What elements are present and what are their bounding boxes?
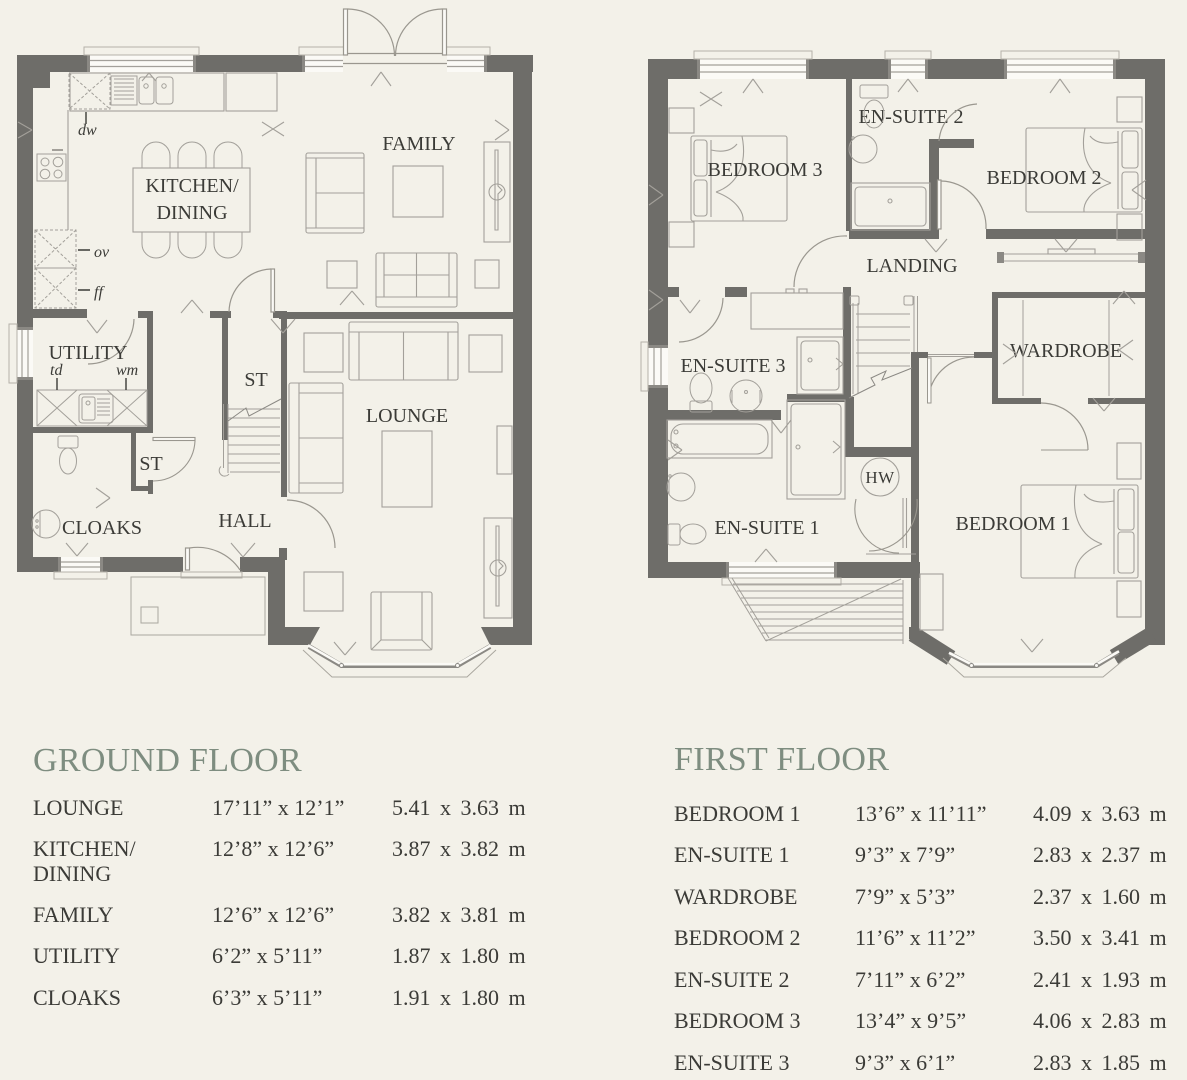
svg-text:13’6” x 11’11”: 13’6” x 11’11” [855,801,987,826]
svg-text:EN-SUITE 1: EN-SUITE 1 [715,517,820,539]
svg-text:WARDROBE: WARDROBE [1010,340,1122,362]
svg-text:7’9” x 5’3”: 7’9” x 5’3” [855,884,955,909]
svg-text:12’8” x 12’6”: 12’8” x 12’6” [212,836,334,861]
svg-text:CLOAKS: CLOAKS [62,517,142,539]
svg-text:EN-SUITE 2: EN-SUITE 2 [859,106,964,128]
svg-text:KITCHEN/: KITCHEN/ [33,836,137,861]
svg-text:BEDROOM 2: BEDROOM 2 [986,167,1101,189]
svg-text:4.09 x 3.63 m: 4.09 x 3.63 m [1033,801,1167,826]
svg-text:DINING: DINING [156,202,227,224]
svg-text:td: td [50,362,63,379]
svg-text:FIRST FLOOR: FIRST FLOOR [674,741,889,778]
svg-text:GROUND FLOOR: GROUND FLOOR [33,742,302,779]
svg-text:6’3” x 5’11”: 6’3” x 5’11” [212,985,322,1010]
svg-text:BEDROOM 1: BEDROOM 1 [955,513,1070,535]
svg-text:11’6” x 11’2”: 11’6” x 11’2” [855,925,976,950]
svg-text:BEDROOM 3: BEDROOM 3 [674,1008,801,1033]
svg-text:9’3” x 7’9”: 9’3” x 7’9” [855,842,955,867]
svg-text:ov: ov [94,244,110,261]
svg-text:ff: ff [94,284,105,301]
svg-text:3.82 x 3.81 m: 3.82 x 3.81 m [392,902,526,927]
svg-text:LOUNGE: LOUNGE [33,795,123,820]
svg-text:2.37 x 1.60 m: 2.37 x 1.60 m [1033,884,1167,909]
svg-text:DINING: DINING [33,861,111,886]
svg-text:3.87 x 3.82 m: 3.87 x 3.82 m [392,836,526,861]
svg-text:EN-SUITE 3: EN-SUITE 3 [681,355,786,377]
svg-text:BEDROOM 1: BEDROOM 1 [674,801,801,826]
svg-text:5.41 x 3.63 m: 5.41 x 3.63 m [392,795,526,820]
svg-text:HALL: HALL [218,510,271,532]
svg-text:6’2” x 5’11”: 6’2” x 5’11” [212,943,322,968]
svg-text:FAMILY: FAMILY [33,902,114,927]
svg-text:1.87 x 1.80 m: 1.87 x 1.80 m [392,943,526,968]
svg-text:EN-SUITE 1: EN-SUITE 1 [674,842,789,867]
svg-text:1.91 x 1.80 m: 1.91 x 1.80 m [392,985,526,1010]
svg-text:2.83 x 2.37 m: 2.83 x 2.37 m [1033,842,1167,867]
svg-text:ST: ST [139,453,162,475]
svg-text:LANDING: LANDING [866,255,957,277]
svg-text:wm: wm [116,362,138,379]
svg-text:HW: HW [865,468,895,487]
svg-text:3.50 x 3.41 m: 3.50 x 3.41 m [1033,925,1167,950]
svg-text:BEDROOM 2: BEDROOM 2 [674,925,801,950]
svg-text:13’4” x 9’5”: 13’4” x 9’5” [855,1008,966,1033]
svg-text:KITCHEN/: KITCHEN/ [145,175,239,197]
svg-text:ST: ST [244,369,267,391]
svg-text:FAMILY: FAMILY [382,133,455,155]
svg-text:EN-SUITE 2: EN-SUITE 2 [674,967,789,992]
svg-text:EN-SUITE 3: EN-SUITE 3 [674,1050,789,1075]
svg-text:2.41 x 1.93 m: 2.41 x 1.93 m [1033,967,1167,992]
svg-text:12’6” x 12’6”: 12’6” x 12’6” [212,902,334,927]
svg-text:BEDROOM 3: BEDROOM 3 [707,159,822,181]
svg-text:2.83 x 1.85 m: 2.83 x 1.85 m [1033,1050,1167,1075]
svg-text:9’3” x 6’1”: 9’3” x 6’1” [855,1050,955,1075]
svg-text:dw: dw [78,122,97,139]
svg-text:4.06 x 2.83 m: 4.06 x 2.83 m [1033,1008,1167,1033]
svg-text:7’11” x 6’2”: 7’11” x 6’2” [855,967,965,992]
svg-text:WARDROBE: WARDROBE [674,884,797,909]
svg-text:UTILITY: UTILITY [49,342,128,364]
svg-text:CLOAKS: CLOAKS [33,985,121,1010]
svg-text:LOUNGE: LOUNGE [366,405,448,427]
svg-text:UTILITY: UTILITY [33,943,120,968]
svg-text:17’11” x 12’1”: 17’11” x 12’1” [212,795,344,820]
